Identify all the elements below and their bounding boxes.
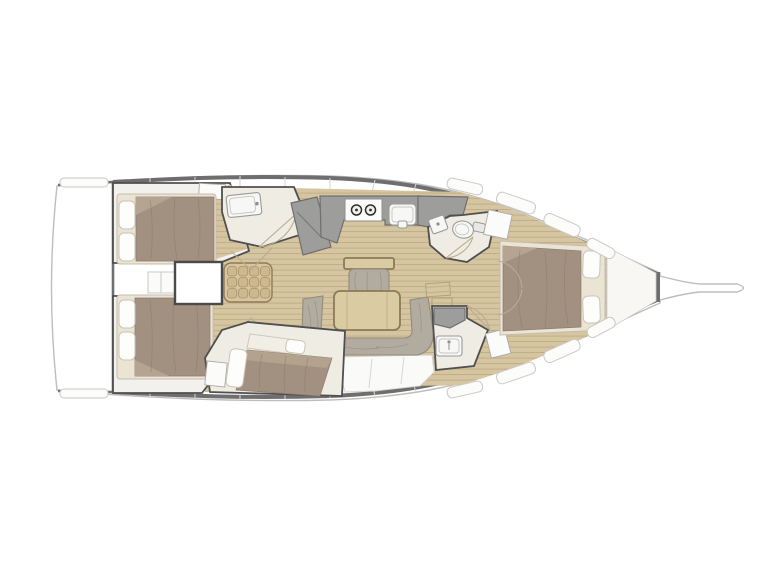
- pillow: [583, 251, 601, 279]
- island-double-bed: [500, 241, 605, 335]
- pillow: [119, 233, 135, 261]
- pillow: [119, 332, 135, 360]
- galley-sink: [389, 204, 416, 228]
- folding-table: [334, 291, 400, 330]
- hanging-locker: [484, 210, 513, 239]
- double-bed-starboard: [117, 295, 213, 379]
- pillow: [285, 339, 306, 355]
- companionway-steps: [224, 263, 272, 302]
- sink: [226, 192, 262, 217]
- locker-hatched-icon: [205, 361, 227, 387]
- side-step: [426, 282, 451, 297]
- double-bed-port: [117, 194, 216, 264]
- cockpit-sole-under-settee: [336, 355, 434, 392]
- pillow: [119, 201, 135, 229]
- stove-icon: [345, 199, 382, 221]
- sink: [436, 336, 462, 356]
- mid-cabin-starboard: [205, 322, 345, 396]
- yacht-floor-plan: [0, 0, 768, 576]
- aft-cabin-starboard: [113, 295, 213, 393]
- owner-cabin-bow: [498, 241, 656, 335]
- pillow: [119, 300, 135, 328]
- floor-plan-canvas: [0, 0, 768, 576]
- engine-compartment: [175, 262, 222, 304]
- pillow: [583, 296, 601, 324]
